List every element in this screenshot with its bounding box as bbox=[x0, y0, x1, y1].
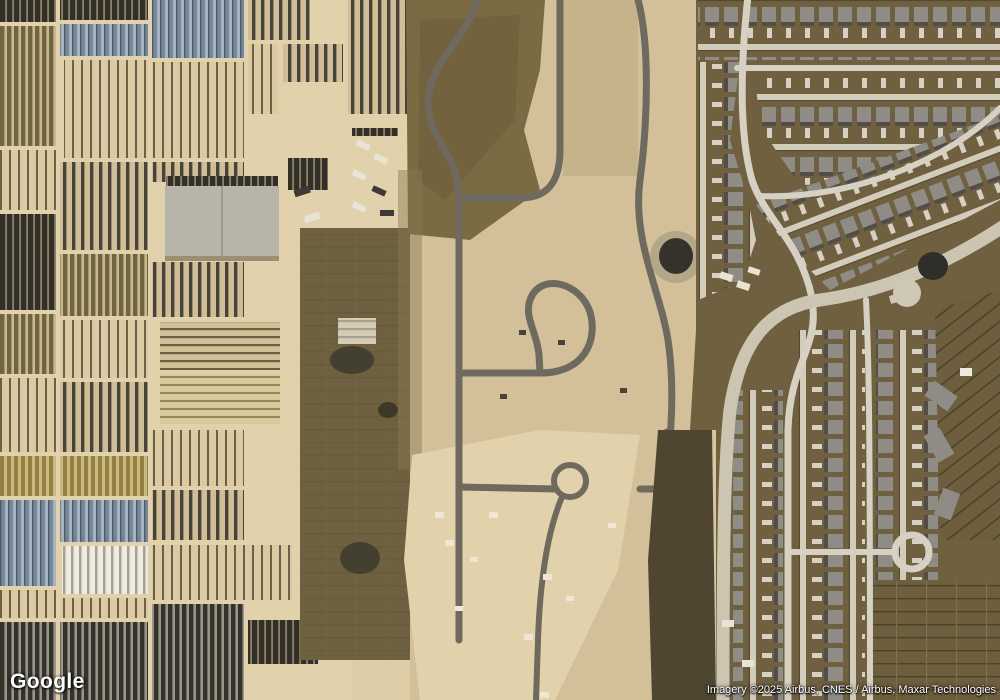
satellite-imagery bbox=[0, 0, 1000, 700]
vegetation-strip bbox=[648, 430, 716, 700]
construction-site bbox=[398, 0, 725, 700]
residential-area bbox=[690, 0, 1000, 700]
pond-small bbox=[918, 252, 948, 280]
pond bbox=[650, 231, 702, 283]
imagery-attribution: Imagery ©2025 Airbus, CNES / Airbus, Max… bbox=[707, 684, 996, 696]
nursery-fields bbox=[0, 0, 416, 700]
google-logo[interactable]: Google bbox=[10, 670, 85, 694]
map-viewport[interactable]: Google Imagery ©2025 Airbus, CNES / Airb… bbox=[0, 0, 1000, 700]
